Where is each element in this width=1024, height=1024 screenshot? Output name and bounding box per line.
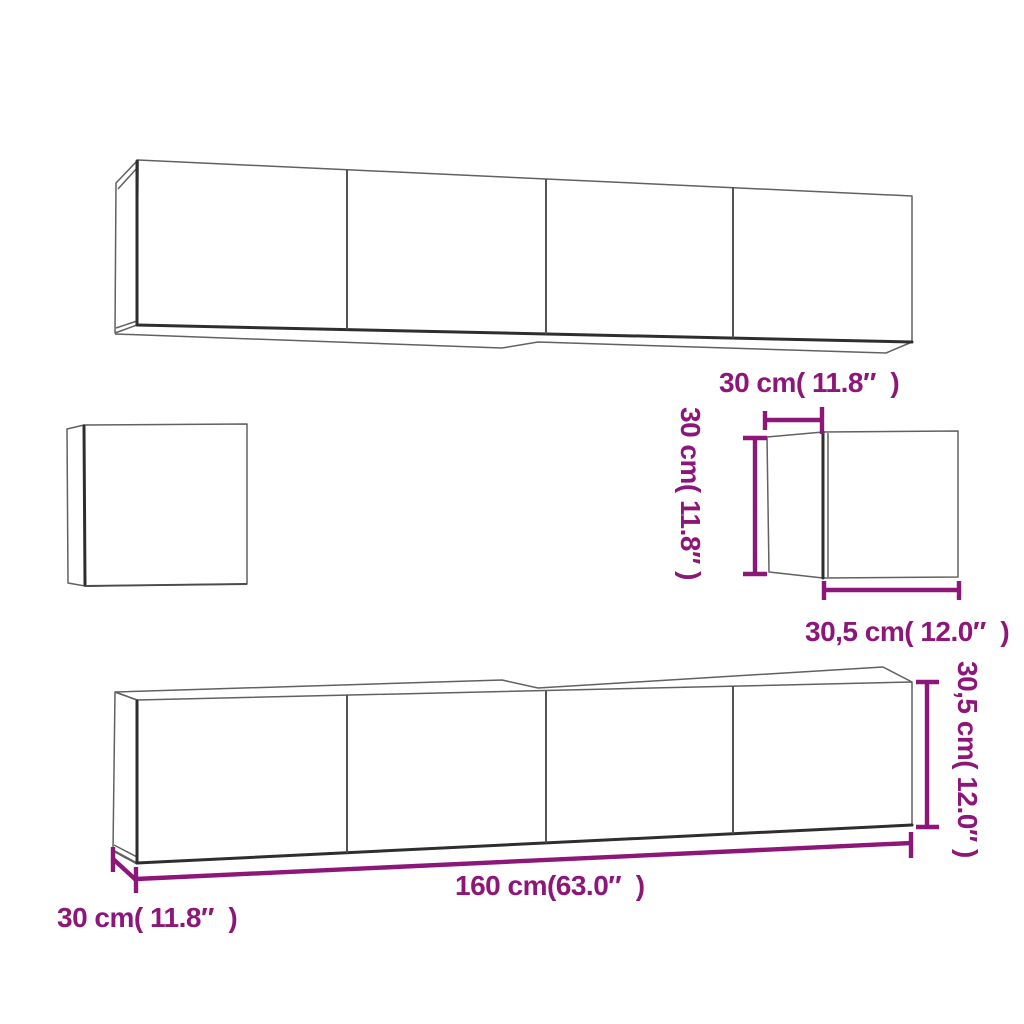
- side-panel: [115, 160, 138, 333]
- front-bottom-edge: [85, 584, 247, 586]
- front-face: [823, 431, 958, 578]
- small-wall-cabinet-drawing: [67, 424, 247, 586]
- dimension-label-long-cabinet-height: 30,5 cm( 12.0″ ): [952, 661, 983, 858]
- front-bottom-edge: [137, 825, 912, 863]
- dimension-label-long-cabinet-depth: 30 cm( 11.8″ ): [57, 902, 237, 933]
- side-panel: [113, 692, 137, 863]
- side-panel: [767, 432, 823, 578]
- front-left-edge: [84, 426, 85, 585]
- front-face: [137, 682, 912, 863]
- side-panel-bottom-line: [114, 845, 137, 857]
- furniture-dimension-diagram: 30 cm( 11.8″ ) 30 cm( 11.8″ ) 30,5 cm( 1…: [0, 0, 1024, 1024]
- cube-depth-dimension-line: [765, 407, 823, 434]
- dimension-label-cube-height: 30 cm( 11.8″ ): [675, 407, 706, 580]
- cube-wall-cabinet-drawing: [767, 431, 958, 578]
- long-cabinet-height-dimension-line: [916, 682, 939, 827]
- dimension-label-cube-depth: 30 cm( 11.8″ ): [719, 367, 899, 398]
- dimension-label-long-cabinet-width: 160 cm(63.0″ ): [455, 870, 645, 901]
- front-face: [137, 160, 912, 342]
- front-face: [84, 424, 247, 586]
- underside-back-edge: [115, 334, 912, 353]
- cube-width-dimension-line: [824, 581, 959, 600]
- side-panel-bottom-line: [116, 321, 137, 328]
- lower-tv-cabinet-drawing: [113, 667, 912, 864]
- upper-wall-cabinet-drawing: [115, 160, 912, 353]
- cube-height-dimension-line: [743, 438, 767, 574]
- side-panel: [67, 425, 85, 586]
- dimension-label-cube-width: 30,5 cm( 12.0″ ): [805, 616, 1009, 647]
- top-back-edge: [115, 667, 912, 692]
